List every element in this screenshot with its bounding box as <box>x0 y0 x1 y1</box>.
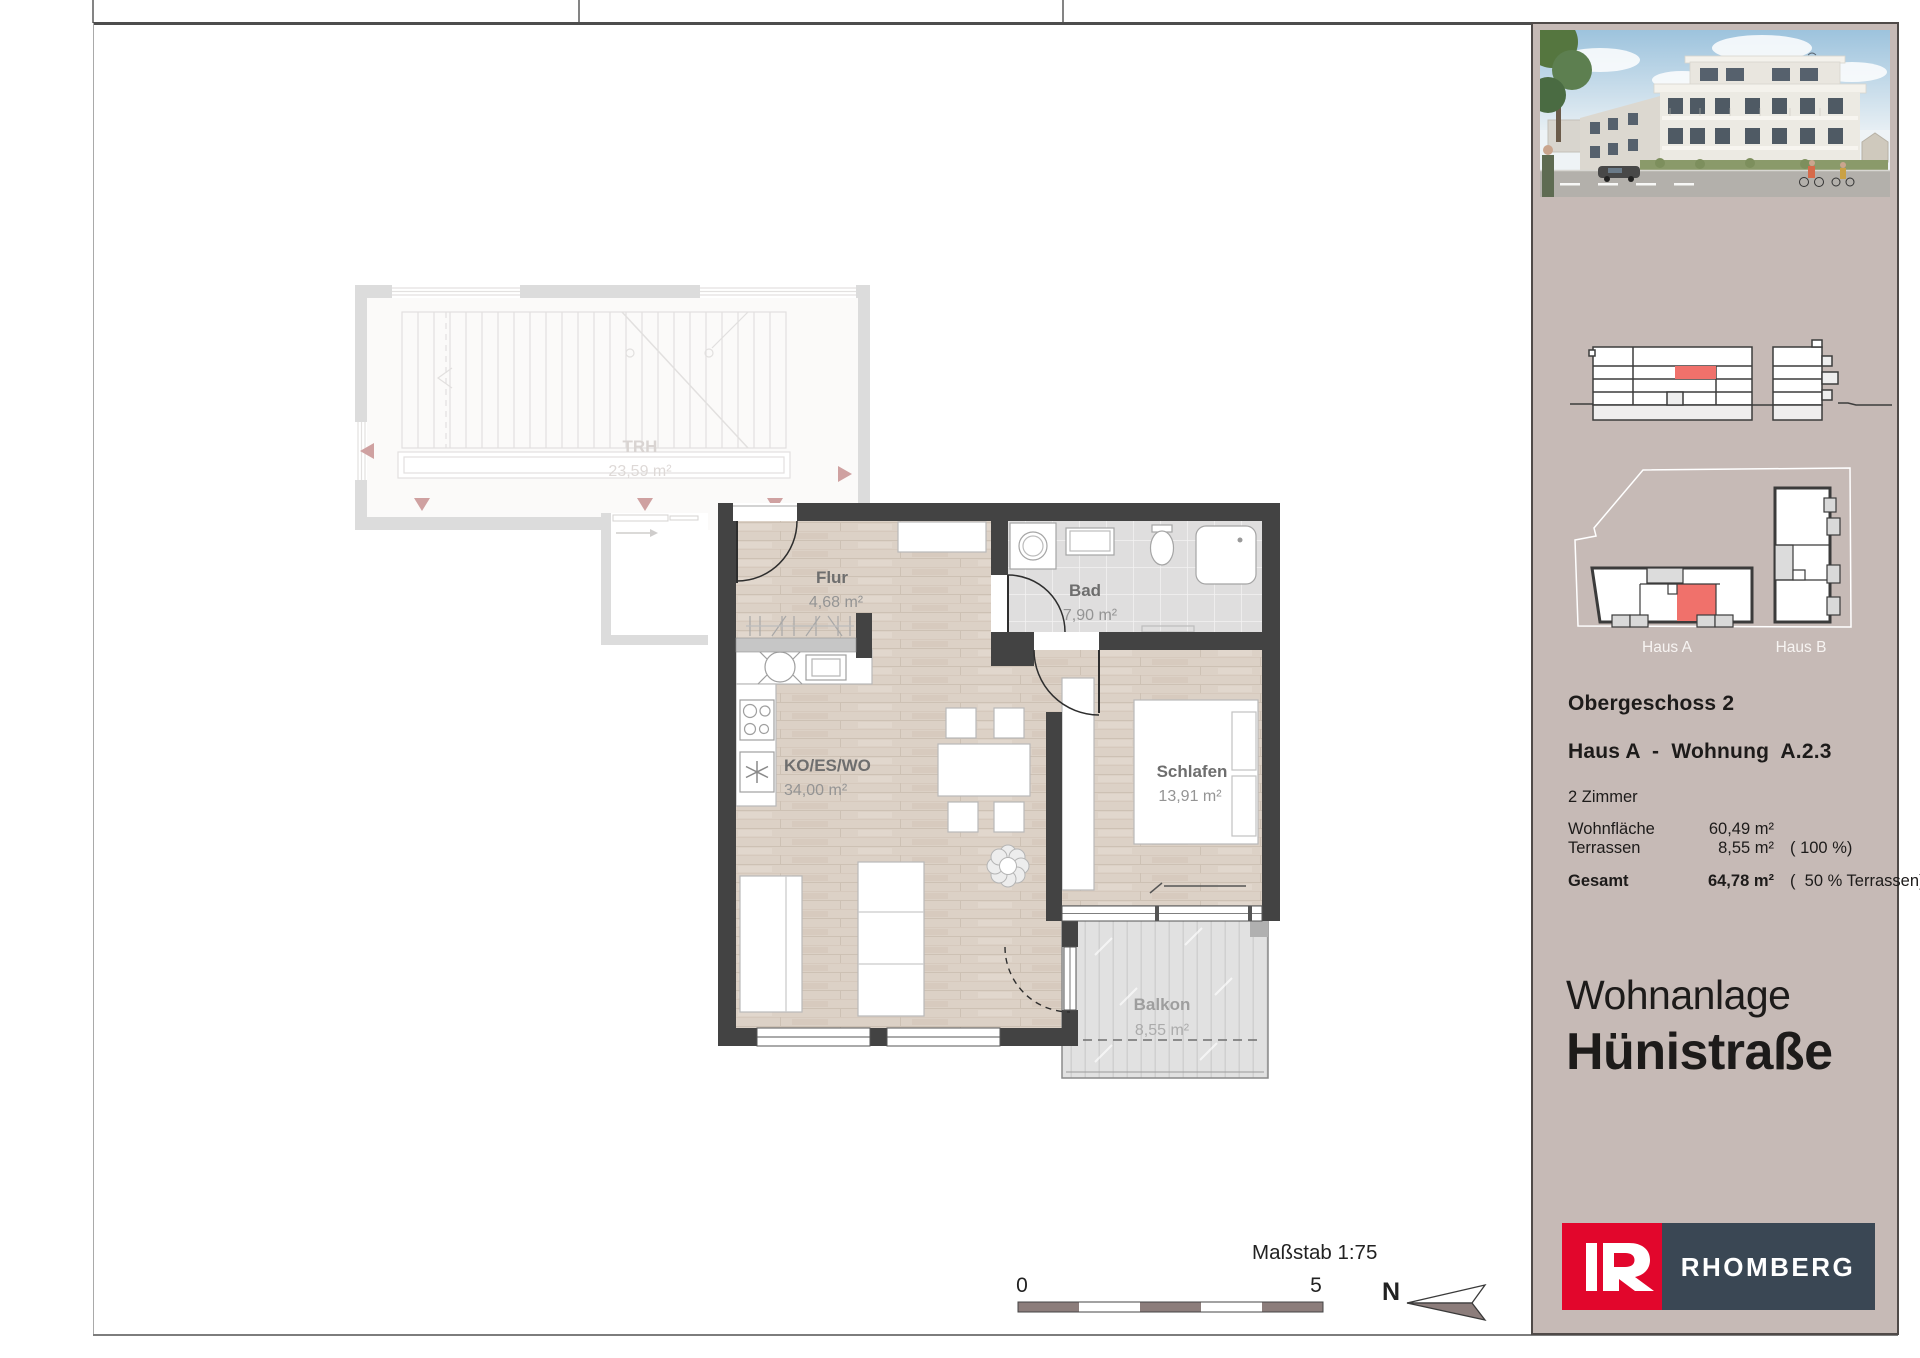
trh-vestibule <box>601 513 708 645</box>
balcony-pier <box>1250 921 1268 937</box>
window-living-2 <box>887 1028 1000 1046</box>
washbasin-icon <box>1066 528 1114 555</box>
area-label-wohnflaeche: Wohnfläche <box>1568 820 1655 839</box>
shelf <box>858 862 924 1016</box>
sidebar-unit-label: Haus A - Wohnung A.2.3 <box>1568 740 1832 764</box>
site-haus-a <box>1592 568 1752 627</box>
area-label-gesamt: Gesamt <box>1568 872 1629 891</box>
room-label-schlafen: Schlafen <box>1157 762 1228 781</box>
window-living-1 <box>757 1028 870 1046</box>
area-note-terrassen: ( 100 %) <box>1790 839 1852 858</box>
site-haus-b <box>1775 488 1840 622</box>
room-label-balkon: Balkon <box>1134 995 1191 1014</box>
room-label-trh: TRH <box>623 437 658 456</box>
room-area-schlafen: 13,91 m² <box>1158 788 1222 805</box>
section-unit-highlight <box>1675 366 1716 379</box>
project-name-line2: Hünistraße <box>1566 1022 1833 1082</box>
scale-max: 5 <box>1310 1274 1322 1297</box>
window-bedroom-band <box>1062 906 1262 921</box>
north-arrow-icon: N <box>1382 1278 1485 1320</box>
hall-cabinet <box>898 522 986 552</box>
sidebar-floor-label: Obergeschoss 2 <box>1568 692 1734 716</box>
plan-sheet: TRH 23,59 m² Balkon 8,55 m² <box>0 0 1920 1358</box>
shower-icon <box>1196 526 1256 584</box>
room-label-bad: Bad <box>1069 581 1101 600</box>
project-name-line1: Wohnanlage <box>1566 972 1790 1019</box>
sidebar-rooms-count: 2 Zimmer <box>1568 788 1638 807</box>
area-value-terrassen: 8,55 m² <box>1652 839 1774 858</box>
sofa <box>740 876 802 1012</box>
title-block <box>93 0 1898 25</box>
sheet-canvas: TRH 23,59 m² Balkon 8,55 m² <box>0 0 1920 1358</box>
balcony-door-panel <box>1064 947 1076 1010</box>
toilet-icon <box>1151 525 1174 565</box>
wardrobe <box>1062 678 1094 890</box>
area-label-terrassen: Terrassen <box>1568 839 1640 858</box>
room-area-flur: 4,68 m² <box>809 594 864 611</box>
area-value-wohnflaeche: 60,49 m² <box>1652 820 1774 839</box>
logo-wordmark: RHOMBERG <box>1681 1252 1856 1282</box>
sidebar-panel <box>1532 23 1898 1334</box>
scale-bar: Maßstab 1:75 0 5 <box>1016 1241 1377 1312</box>
site-label-haus-b: Haus B <box>1776 639 1827 656</box>
site-label-haus-a: Haus A <box>1642 639 1693 656</box>
room-label-flur: Flur <box>816 568 848 587</box>
scale-label: Maßstab 1:75 <box>1252 1241 1377 1264</box>
room-area-bad: 7,90 m² <box>1063 607 1118 624</box>
area-value-gesamt: 64,78 m² <box>1652 872 1774 891</box>
room-area-wohnen: 34,00 m² <box>784 782 848 799</box>
rhomberg-logo: RHOMBERG <box>1562 1223 1875 1310</box>
room-area-balkon: 8,55 m² <box>1135 1022 1190 1039</box>
plant-icon <box>987 845 1029 887</box>
room-area-trh: 23,59 m² <box>608 463 672 480</box>
north-label: N <box>1382 1278 1400 1306</box>
scale-min: 0 <box>1016 1274 1028 1297</box>
room-label-wohnen: KO/ES/WO <box>784 756 871 775</box>
kitchen-knee-wall <box>736 638 856 652</box>
balcony: Balkon 8,55 m² <box>1062 906 1268 1078</box>
washing-machine-icon <box>1010 523 1056 569</box>
building-photo <box>1526 16 1890 197</box>
area-note-gesamt: ( 50 % Terrassen) <box>1790 872 1920 891</box>
